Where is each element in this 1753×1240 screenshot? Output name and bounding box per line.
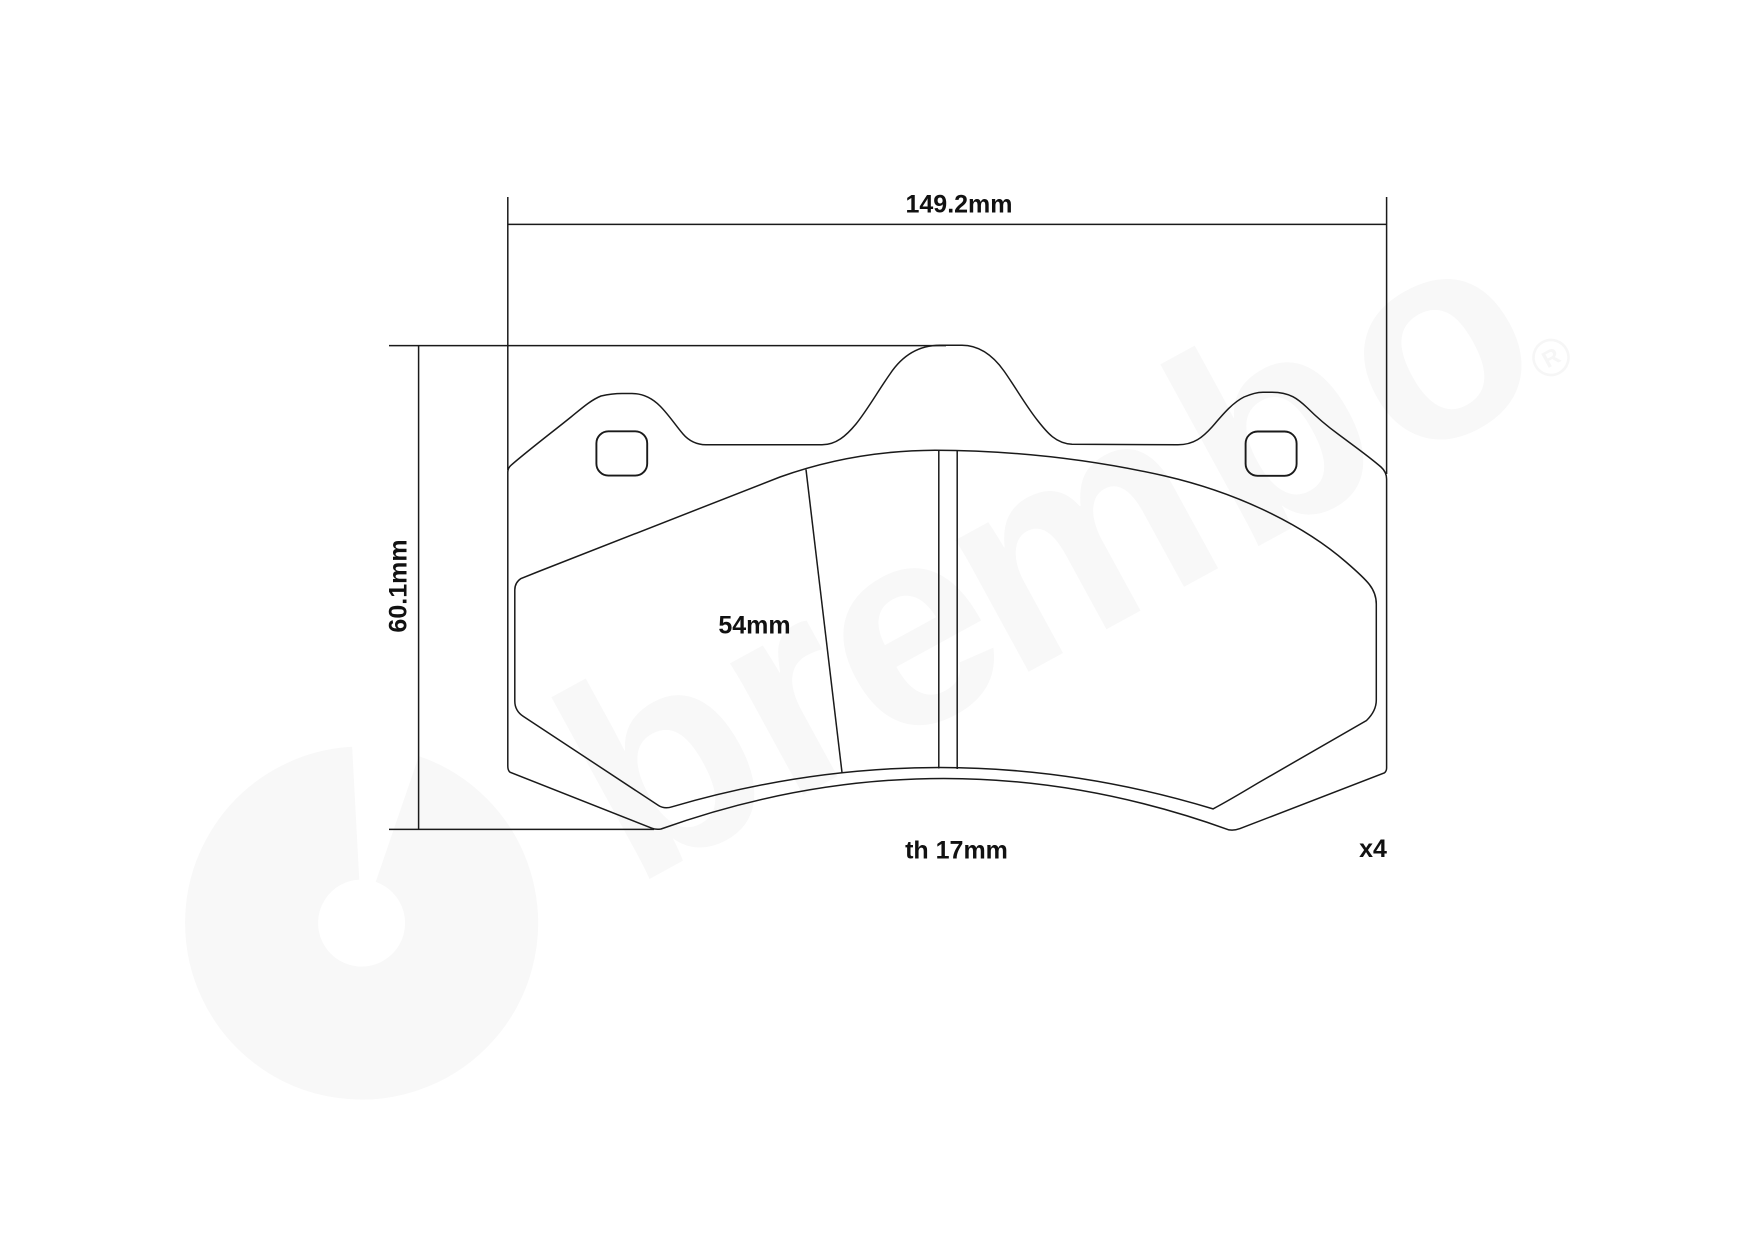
svg-text:60.1mm: 60.1mm — [385, 539, 413, 632]
svg-text:x4: x4 — [1359, 835, 1387, 863]
svg-text:th 17mm: th 17mm — [905, 837, 1008, 865]
svg-text:149.2mm: 149.2mm — [905, 191, 1012, 219]
svg-text:54mm: 54mm — [718, 612, 790, 640]
